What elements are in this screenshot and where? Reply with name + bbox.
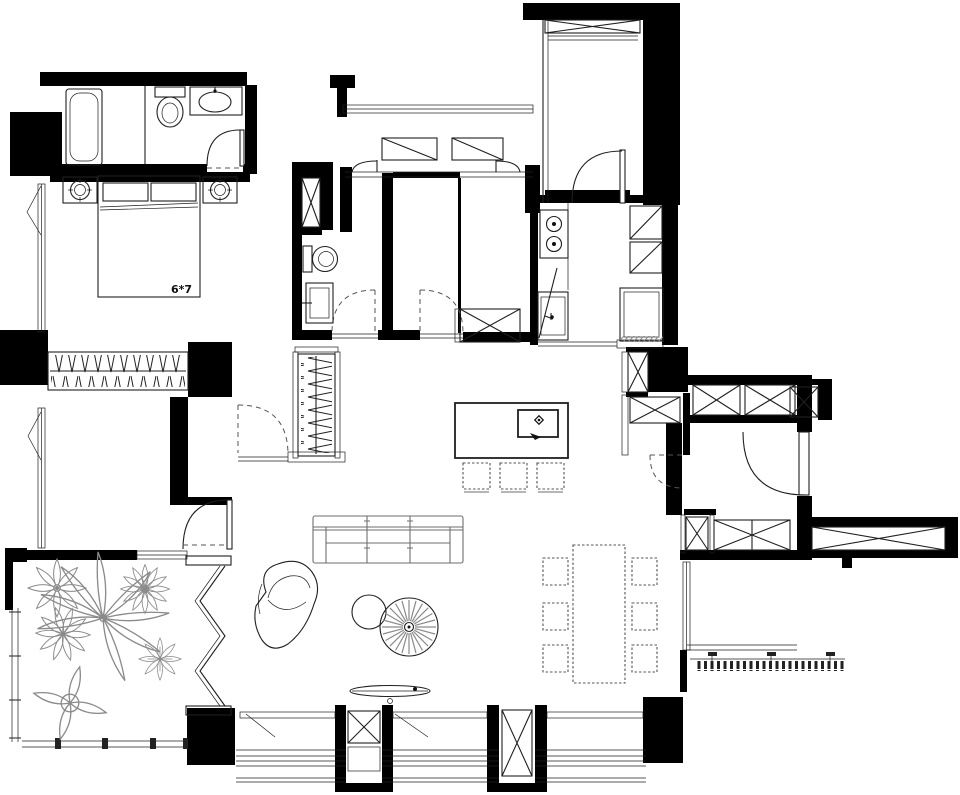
bed-size-label: 6*7 <box>171 283 192 296</box>
door-closet-room-dashed <box>420 290 463 333</box>
door-bedroom2 <box>183 500 232 549</box>
powder-room <box>302 246 338 323</box>
duct-shaft-se-small <box>686 517 708 550</box>
plant-cross-leaf <box>24 657 116 749</box>
pantry-cabinet <box>630 397 680 423</box>
pier-a <box>346 705 382 783</box>
kitchen-island <box>455 403 568 492</box>
armchair <box>255 561 318 648</box>
bathtub <box>66 89 102 165</box>
elevator-shaft-a <box>693 385 740 415</box>
folding-door-balcony <box>186 556 231 715</box>
washbasin <box>190 87 242 115</box>
floor-plan-page: 6*7 <box>0 0 960 795</box>
balcony-garden <box>9 551 188 749</box>
door-entry-main <box>743 432 809 495</box>
window-corridor-north <box>343 105 533 113</box>
bathroom-main <box>66 86 242 165</box>
cooktop <box>540 210 568 258</box>
duct-shaft-powder <box>302 178 320 227</box>
walk-in-closet <box>293 352 340 458</box>
cabinet-far-right-long <box>812 527 945 550</box>
living-room <box>255 516 463 704</box>
plant-flower <box>28 559 86 617</box>
window-bedroom2-south <box>137 551 187 559</box>
door-powder-dashed <box>332 290 375 333</box>
cabinet-topright-room <box>545 20 640 33</box>
window-bedroom1-west <box>27 184 45 332</box>
duct-shaft-entry <box>628 352 648 392</box>
floor-plan-canvas: 6*7 <box>0 0 960 795</box>
window-living-south <box>240 712 643 737</box>
elevator-shaft-b <box>745 385 795 415</box>
side-table <box>352 595 386 629</box>
potted-plants <box>24 551 181 748</box>
structural-walls <box>0 3 958 792</box>
toilet-2 <box>303 246 338 272</box>
plant-snowflake <box>139 638 181 680</box>
kitchen-tall-cabinets <box>630 206 662 273</box>
window-bedroom2-west <box>28 408 45 548</box>
plant-spiky <box>28 599 97 668</box>
balcony-railing-west <box>9 608 21 742</box>
double-bed: 6*7 <box>98 176 200 297</box>
shafts-and-cabinets <box>302 20 945 550</box>
washbasin-2 <box>302 283 333 323</box>
wardrobe-hangers <box>48 352 188 390</box>
refrigerator <box>620 288 663 342</box>
exterior-ledge-lines <box>236 750 646 782</box>
round-rug <box>380 598 438 656</box>
sofa <box>313 516 463 563</box>
balcony-se <box>690 652 845 671</box>
cabinet-se-wide <box>714 520 790 550</box>
window-balcony-se-west <box>683 562 690 650</box>
door-bathroom1 <box>207 130 244 172</box>
balcony-railing-se <box>690 652 845 671</box>
dining-table <box>573 545 625 683</box>
facade-piers <box>346 705 535 783</box>
wall-topright-room-west <box>543 20 548 203</box>
corridor-cabinets <box>352 138 520 172</box>
toilet <box>155 87 185 127</box>
coffee-table <box>350 686 430 704</box>
kitchen-sink <box>538 292 568 340</box>
plant-dense-star <box>121 565 170 614</box>
door-dressing-dashed <box>238 405 288 455</box>
pier-b <box>499 705 535 783</box>
dining-set <box>543 545 657 683</box>
dining-chairs <box>543 558 657 672</box>
bar-stools <box>463 463 564 492</box>
balcony-railing-south <box>22 738 188 749</box>
